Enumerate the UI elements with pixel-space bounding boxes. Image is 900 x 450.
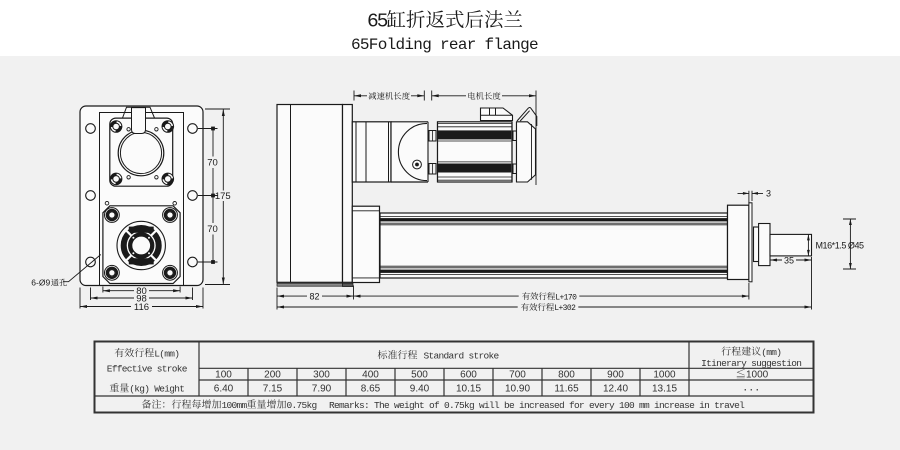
svg-text:7.90: 7.90 [312,384,332,395]
svg-text:6-Ø9: 6-Ø9 [31,277,50,287]
svg-text:500: 500 [411,370,428,381]
svg-text:100mm: 100mm [222,400,248,411]
svg-text:6.40: 6.40 [214,384,234,395]
svg-text:600: 600 [460,370,477,381]
svg-text:3: 3 [766,189,771,199]
svg-text:800: 800 [558,370,575,381]
svg-text:116: 116 [134,302,149,313]
svg-text:35: 35 [784,255,794,265]
svg-text:1000: 1000 [653,370,676,381]
svg-text:9.40: 9.40 [410,384,430,395]
svg-text:13.15: 13.15 [652,384,677,395]
svg-text:L+170: L+170 [555,293,577,302]
svg-text:Effective stroke: Effective stroke [107,363,188,374]
svg-text:82: 82 [309,291,319,301]
svg-text:0.75kg: 0.75kg [287,400,317,411]
svg-text:11.65: 11.65 [554,384,579,395]
svg-text:10.15: 10.15 [456,384,481,395]
svg-text:175: 175 [215,191,231,202]
svg-text:...: ... [742,384,760,395]
svg-text:Standard stroke: Standard stroke [424,350,500,361]
svg-text:M16*1.5 Ø45: M16*1.5 Ø45 [816,241,865,251]
svg-text:900: 900 [607,370,624,381]
svg-text:10.90: 10.90 [505,384,530,395]
svg-text:(mm): (mm) [761,347,781,358]
svg-text:700: 700 [509,370,526,381]
svg-text:400: 400 [362,370,379,381]
svg-text:12.40: 12.40 [603,384,628,395]
svg-text:65Folding rear flange: 65Folding rear flange [351,36,538,54]
svg-text:Remarks: The weight of 0.75kg: Remarks: The weight of 0.75kg will be in… [329,400,745,411]
svg-text:(kg) Weight: (kg) Weight [129,384,184,395]
svg-text:200: 200 [264,370,281,381]
svg-text:L(mm): L(mm) [154,348,179,359]
svg-text:300: 300 [313,370,330,381]
svg-text:8.65: 8.65 [361,384,381,395]
svg-text:65: 65 [367,11,388,33]
svg-text:7.15: 7.15 [263,384,283,395]
svg-text:70: 70 [207,157,218,168]
svg-text:70: 70 [207,224,218,235]
svg-text:Itinerary suggestion: Itinerary suggestion [701,358,801,369]
svg-text:100: 100 [215,370,232,381]
svg-text:1000: 1000 [746,370,769,381]
svg-text:L+302: L+302 [554,304,576,313]
